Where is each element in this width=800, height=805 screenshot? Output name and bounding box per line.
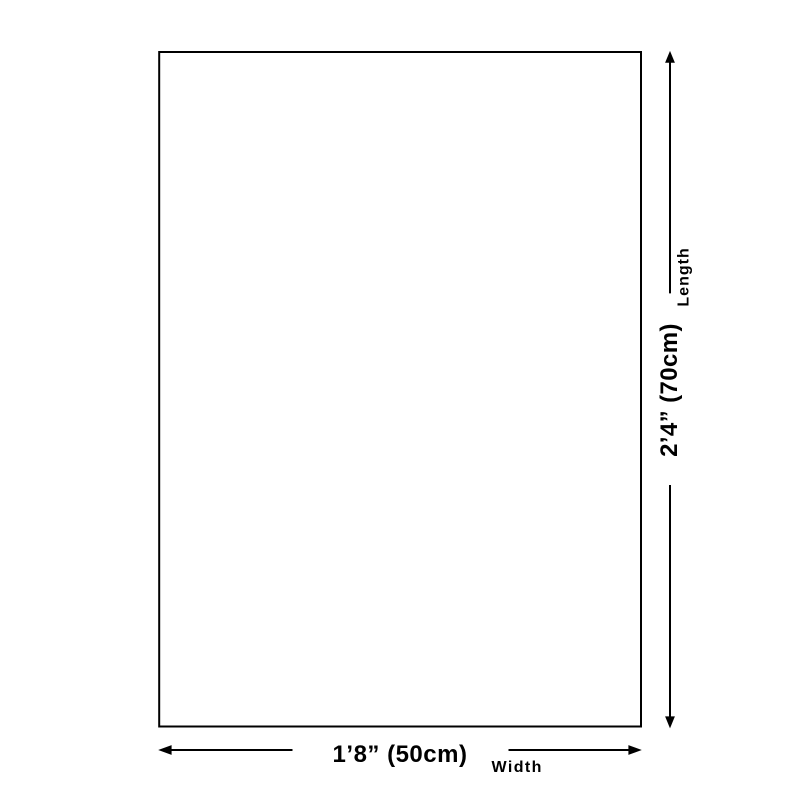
svg-text:1’8” (50cm): 1’8” (50cm) — [333, 741, 468, 768]
svg-text:Length: Length — [676, 247, 693, 306]
svg-text:Width: Width — [492, 759, 543, 776]
svg-text:2’4” (70cm): 2’4” (70cm) — [656, 323, 683, 457]
